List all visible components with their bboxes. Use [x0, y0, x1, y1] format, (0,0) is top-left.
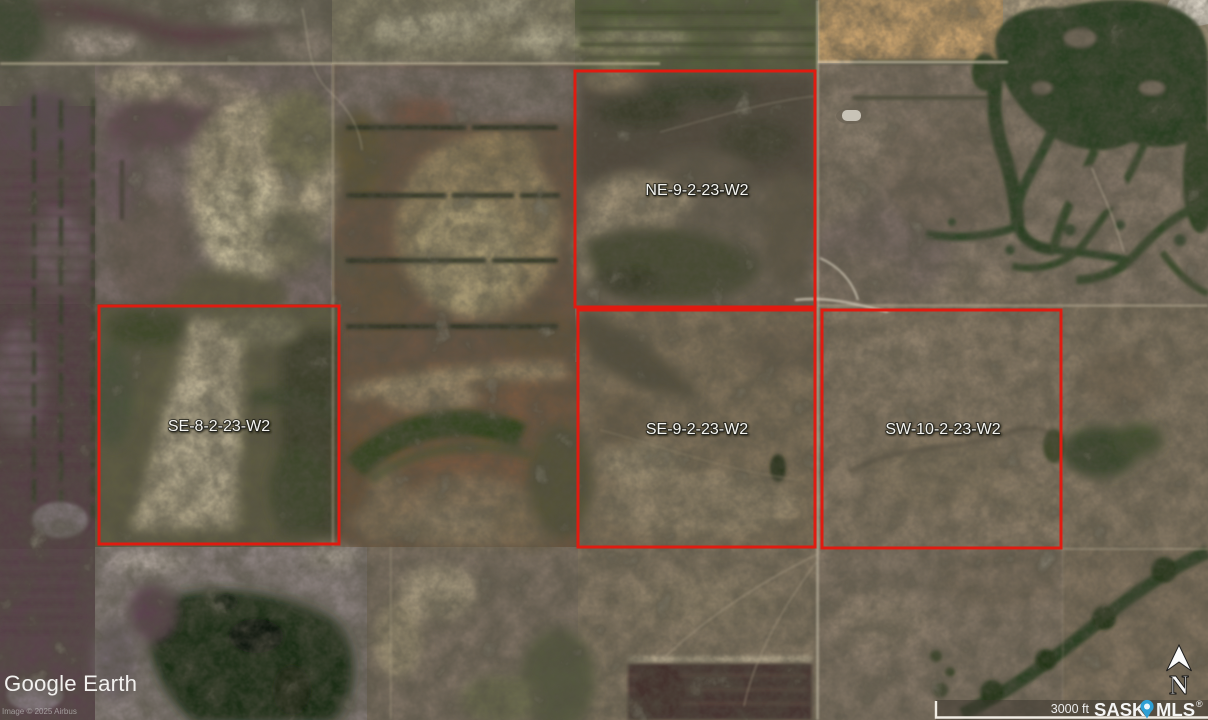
- svg-text:Image © 2025 Airbus: Image © 2025 Airbus: [2, 707, 77, 716]
- svg-text:SE-8-2-23-W2: SE-8-2-23-W2: [168, 418, 270, 435]
- svg-text:SASK: SASK: [1094, 699, 1146, 720]
- svg-text:3000 ft: 3000 ft: [1051, 702, 1090, 716]
- svg-text:N: N: [1169, 670, 1189, 700]
- svg-text:NE-9-2-23-W2: NE-9-2-23-W2: [645, 182, 748, 199]
- svg-text:Google Earth: Google Earth: [4, 671, 137, 696]
- svg-text:SW-10-2-23-W2: SW-10-2-23-W2: [885, 421, 1000, 438]
- svg-text:MLS: MLS: [1156, 699, 1195, 720]
- svg-text:SE-9-2-23-W2: SE-9-2-23-W2: [646, 421, 748, 438]
- svg-text:®: ®: [1196, 699, 1203, 709]
